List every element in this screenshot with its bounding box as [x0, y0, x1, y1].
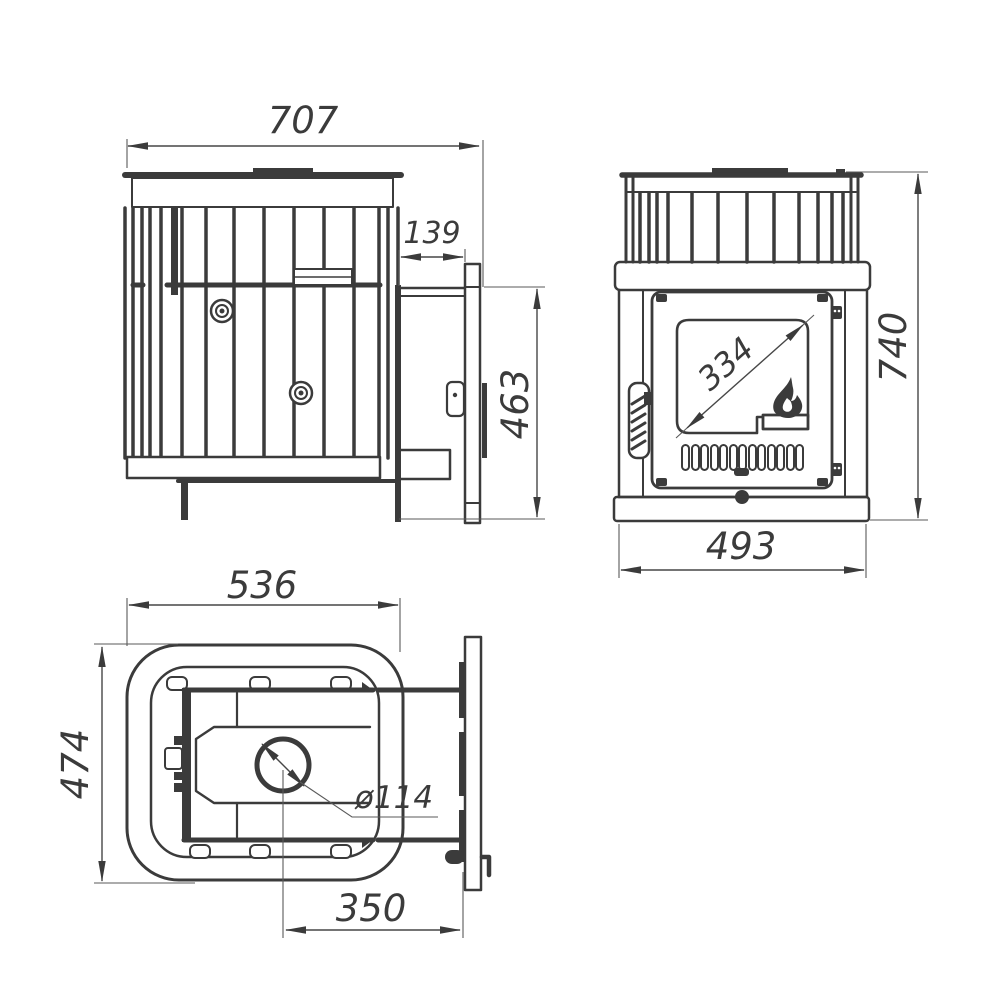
- mounting-flange: [465, 264, 480, 523]
- dim-top-width: 536: [127, 564, 400, 652]
- dim-707-label: 707: [268, 99, 339, 142]
- flange-edge-bar: [482, 383, 487, 458]
- dim-474-label: 474: [54, 729, 97, 800]
- dim-740-label: 740: [872, 312, 915, 383]
- front-view: 334 740 493: [614, 168, 928, 578]
- bolt: [290, 382, 312, 404]
- cage-top-band: [132, 178, 393, 207]
- dim-139-label: 139: [403, 216, 460, 251]
- dim-463-label: 463: [494, 369, 537, 440]
- slot-tab: [734, 468, 749, 476]
- door-hinge-top: [831, 306, 842, 319]
- cage-bars: [640, 193, 843, 262]
- door-handle: [629, 383, 653, 458]
- cage-corner-posts: [626, 176, 858, 262]
- dim-350-label: 350: [336, 887, 407, 930]
- tunnel-wall-leg: [395, 285, 401, 522]
- side-view: 707 139 463: [125, 99, 545, 523]
- dim-front-width: 493: [619, 524, 866, 578]
- dim-tunnel-length: 139: [399, 216, 465, 286]
- flange-top: [459, 637, 481, 890]
- front-leg: [181, 483, 188, 520]
- dim-493-label: 493: [706, 525, 777, 568]
- door-latch-side: [447, 382, 464, 416]
- bolt: [211, 300, 233, 322]
- stove-technical-drawing: 707 139 463: [0, 0, 1000, 1000]
- top-view: 536 474 ø114 350: [54, 564, 489, 938]
- side-bracket: [294, 269, 352, 285]
- cage-bars: [125, 208, 398, 458]
- cage-thick-bar: [171, 207, 178, 295]
- handle-top: [165, 736, 182, 792]
- dim-536-label: 536: [227, 564, 298, 607]
- dim-d114-label: ø114: [354, 780, 433, 816]
- body-top-band: [615, 262, 870, 290]
- door-hinge-bottom: [831, 463, 842, 476]
- cage-bottom-band: [127, 457, 380, 478]
- drawing-page: 707 139 463: [0, 0, 1000, 1000]
